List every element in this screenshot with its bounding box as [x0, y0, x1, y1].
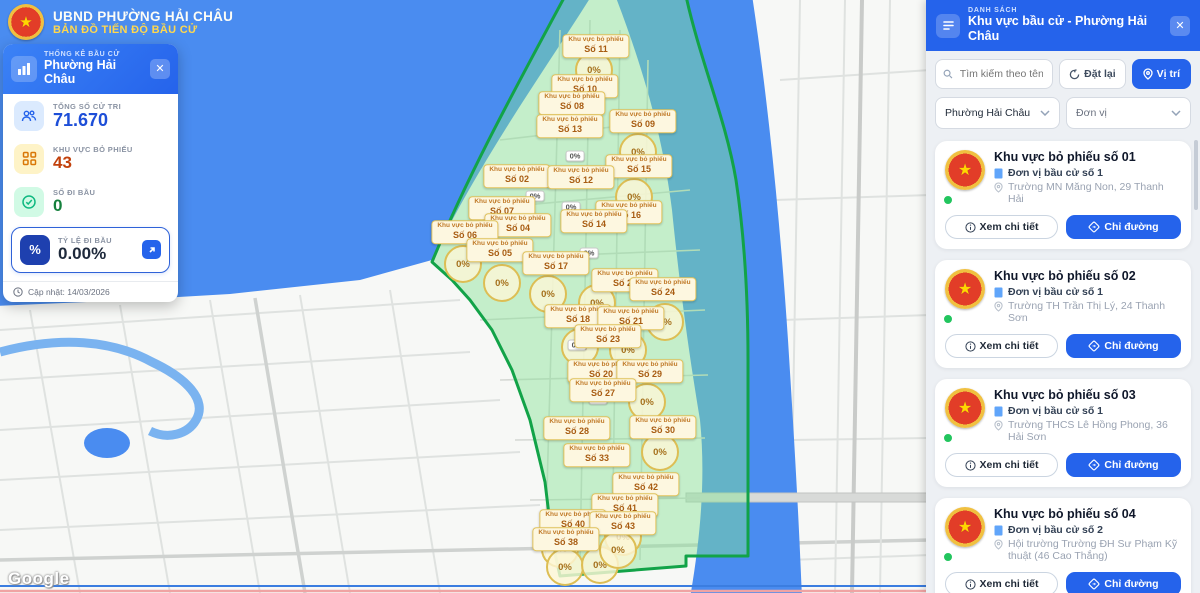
close-icon[interactable]: ✕ — [1170, 16, 1190, 36]
card-title: Khu vực bỏ phiếu số 01 — [994, 150, 1181, 164]
polling-station-list: ★Khu vực bỏ phiếu số 01Đơn vị bầu cử số … — [926, 135, 1200, 593]
polling-station-card: ★Khu vực bỏ phiếu số 02Đơn vị bầu cử số … — [935, 260, 1191, 368]
status-dot — [943, 314, 953, 324]
address-pin-icon — [994, 539, 1003, 550]
polling-area-map-marker[interactable]: Khu vực bỏ phiếuSố 28 — [543, 416, 610, 440]
app-subtitle: BẢN ĐỒ TIẾN ĐỘ BẦU CỬ — [53, 24, 233, 36]
polling-area-map-marker[interactable]: Khu vực bỏ phiếuSố 13 — [536, 114, 603, 138]
filters-area: Đặt lại Vị trí Phường Hải Châu Đơn vị — [926, 51, 1200, 135]
card-emblem: ★ — [945, 150, 985, 207]
updated-text: Cập nhật: 14/03/2026 — [28, 287, 110, 297]
marker-title: Khu vực bỏ phiếu — [603, 308, 658, 316]
card-emblem: ★ — [945, 388, 985, 445]
directions-button[interactable]: Chỉ đường — [1066, 215, 1181, 239]
marker-title: Khu vực bỏ phiếu — [622, 361, 677, 369]
chevron-down-icon — [1171, 110, 1181, 116]
polling-area-map-marker[interactable]: Khu vực bỏ phiếuSố 15 — [605, 154, 672, 178]
polling-area-map-marker[interactable]: Khu vực bỏ phiếuSố 02 — [483, 164, 550, 188]
polling-area-map-marker[interactable]: Khu vực bỏ phiếuSố 14 — [560, 209, 627, 233]
marker-title: Khu vực bỏ phiếu — [580, 326, 635, 334]
card-unit-row: Đơn vị bầu cử số 2 — [994, 524, 1181, 536]
unit-doc-icon — [994, 525, 1003, 536]
polling-station-card: ★Khu vực bỏ phiếu số 01Đơn vị bầu cử số … — [935, 141, 1191, 249]
marker-title: Khu vực bỏ phiếu — [474, 198, 529, 206]
polling-area-map-marker[interactable]: Khu vực bỏ phiếuSố 09 — [609, 109, 676, 133]
stat-value-total-voters: 71.670 — [53, 111, 121, 130]
status-dot — [943, 195, 953, 205]
card-emblem: ★ — [945, 507, 985, 564]
close-icon[interactable]: ✕ — [150, 59, 170, 79]
directions-button[interactable]: Chỉ đường — [1066, 334, 1181, 358]
address-pin-icon — [994, 420, 1003, 431]
refresh-icon — [1069, 69, 1080, 80]
polling-area-map-marker[interactable]: Khu vực bỏ phiếuSố 30 — [629, 415, 696, 439]
clock-icon — [13, 287, 23, 297]
app-header: ★ UBND PHƯỜNG HẢI CHÂU BẢN ĐỒ TIẾN ĐỘ BẦ… — [8, 4, 233, 40]
marker-number: Số 13 — [542, 124, 597, 135]
card-address-row: Hội trường Trường ĐH Sư Phạm Kỹ thuật (4… — [994, 538, 1181, 562]
percent-icon: % — [20, 235, 50, 265]
marker-number: Số 30 — [635, 425, 690, 436]
search-input[interactable] — [958, 67, 1045, 81]
marker-title: Khu vực bỏ phiếu — [544, 93, 599, 101]
view-details-button[interactable]: Xem chi tiết — [945, 453, 1058, 477]
ward-select[interactable]: Phường Hải Châu — [935, 97, 1060, 129]
google-logo: Google — [8, 569, 70, 589]
marker-title: Khu vực bỏ phiếu — [611, 156, 666, 164]
percent-circle-marker[interactable]: 0% — [599, 531, 637, 569]
marker-number: Số 42 — [618, 482, 673, 493]
info-icon — [965, 222, 976, 233]
card-address-row: Trường MN Măng Non, 29 Thanh Hải — [994, 181, 1181, 205]
marker-number: Số 28 — [549, 426, 604, 437]
card-address-row: Trường THCS Lê Hồng Phong, 36 Hải Sơn — [994, 419, 1181, 443]
marker-title: Khu vực bỏ phiếu — [528, 253, 583, 261]
directions-icon — [1088, 340, 1100, 352]
stat-value-turnout: 0.00% — [58, 245, 112, 263]
search-input-wrap — [935, 59, 1053, 89]
list-header-title: Khu vực bầu cử - Phường Hải Châu — [968, 14, 1162, 44]
marker-title: Khu vực bỏ phiếu — [595, 513, 650, 521]
marker-number: Số 23 — [580, 334, 635, 345]
bar-chart-icon — [11, 56, 37, 82]
marker-title: Khu vực bỏ phiếu — [472, 240, 527, 248]
list-panel-header: DANH SÁCH Khu vực bầu cử - Phường Hải Ch… — [926, 0, 1200, 51]
polling-area-map-marker[interactable]: Khu vực bỏ phiếuSố 12 — [547, 165, 614, 189]
marker-title: Khu vực bỏ phiếu — [618, 474, 673, 482]
marker-title: Khu vực bỏ phiếu — [635, 279, 690, 287]
polling-area-map-marker[interactable]: Khu vực bỏ phiếuSố 11 — [562, 34, 629, 58]
marker-number: Số 09 — [615, 119, 670, 130]
marker-number: Số 04 — [490, 223, 545, 234]
info-icon — [965, 579, 976, 590]
card-address-row: Trường TH Trần Thị Lý, 24 Thanh Sơn — [994, 300, 1181, 324]
external-arrow-icon[interactable] — [142, 240, 161, 259]
location-pin-icon — [1143, 68, 1153, 80]
marker-title: Khu vực bỏ phiếu — [542, 116, 597, 124]
check-circle-icon — [14, 187, 44, 217]
marker-number: Số 15 — [611, 164, 666, 175]
marker-title: Khu vực bỏ phiếu — [597, 495, 652, 503]
reset-button[interactable]: Đặt lại — [1059, 59, 1126, 89]
stats-header-label: THỐNG KÊ BẦU CỬ — [44, 51, 143, 58]
marker-number: Số 33 — [569, 453, 624, 464]
info-icon — [965, 460, 976, 471]
polling-area-map-marker[interactable]: Khu vực bỏ phiếuSố 27 — [569, 378, 636, 402]
marker-title: Khu vực bỏ phiếu — [549, 418, 604, 426]
marker-number: Số 12 — [553, 175, 608, 186]
status-dot — [943, 433, 953, 443]
marker-title: Khu vực bỏ phiếu — [538, 529, 593, 537]
marker-title: Khu vực bỏ phiếu — [553, 167, 608, 175]
marker-number: Số 24 — [635, 287, 690, 298]
stat-value-polling-areas: 43 — [53, 154, 133, 172]
directions-button[interactable]: Chỉ đường — [1066, 453, 1181, 477]
stats-panel: THỐNG KÊ BẦU CỬ Phường Hải Châu ✕ TỔNG S… — [3, 44, 178, 302]
app-title: UBND PHƯỜNG HẢI CHÂU — [53, 9, 233, 24]
polling-area-map-marker[interactable]: Khu vực bỏ phiếuSố 43 — [589, 511, 656, 535]
chevron-down-icon — [1040, 110, 1050, 116]
marker-number: Số 38 — [538, 537, 593, 548]
card-title: Khu vực bỏ phiếu số 04 — [994, 507, 1181, 521]
info-icon — [965, 341, 976, 352]
percent-circle-marker[interactable]: 0% — [546, 548, 584, 586]
marker-number: Số 08 — [544, 101, 599, 112]
marker-number: Số 17 — [528, 261, 583, 272]
marker-title: Khu vực bỏ phiếu — [566, 211, 621, 219]
scrollbar[interactable] — [1194, 140, 1198, 210]
marker-number: Số 27 — [575, 388, 630, 399]
marker-title: Khu vực bỏ phiếu — [615, 111, 670, 119]
percent-circle-marker[interactable]: 0% — [483, 264, 521, 302]
list-menu-icon[interactable] — [936, 14, 960, 38]
grid-icon — [14, 144, 44, 174]
card-title: Khu vực bỏ phiếu số 03 — [994, 388, 1181, 402]
polling-area-map-marker[interactable]: Khu vực bỏ phiếuSố 24 — [629, 277, 696, 301]
view-details-button[interactable]: Xem chi tiết — [945, 572, 1058, 593]
polling-area-map-marker[interactable]: Khu vực bỏ phiếuSố 17 — [522, 251, 589, 275]
unit-select[interactable]: Đơn vị — [1066, 97, 1191, 129]
marker-title: Khu vực bỏ phiếu — [557, 76, 612, 84]
search-icon — [943, 68, 953, 80]
address-pin-icon — [994, 182, 1003, 193]
card-emblem: ★ — [945, 269, 985, 326]
view-details-button[interactable]: Xem chi tiết — [945, 334, 1058, 358]
card-unit-row: Đơn vị bầu cử số 1 — [994, 167, 1181, 179]
card-title: Khu vực bỏ phiếu số 02 — [994, 269, 1181, 283]
stats-updated: Cập nhật: 14/03/2026 — [3, 281, 178, 302]
polling-area-map-marker[interactable]: Khu vực bỏ phiếuSố 38 — [532, 527, 599, 551]
pond — [84, 428, 130, 458]
directions-icon — [1088, 459, 1100, 471]
marker-title: Khu vực bỏ phiếu — [489, 166, 544, 174]
marker-title: Khu vực bỏ phiếu — [490, 215, 545, 223]
directions-icon — [1088, 578, 1100, 590]
marker-number: Số 14 — [566, 219, 621, 230]
marker-title: Khu vực bỏ phiếu — [635, 417, 690, 425]
stat-polling-areas: KHU VỰC BỎ PHIẾU 43 — [3, 137, 178, 180]
stats-panel-header: THỐNG KÊ BẦU CỬ Phường Hải Châu ✕ — [3, 44, 178, 94]
marker-title: Khu vực bỏ phiếu — [575, 380, 630, 388]
card-unit-row: Đơn vị bầu cử số 1 — [994, 405, 1181, 417]
marker-number: Số 05 — [472, 248, 527, 259]
voters-people-icon — [14, 101, 44, 131]
stat-value-voted: 0 — [53, 197, 95, 215]
polling-area-map-marker[interactable]: Khu vực bỏ phiếuSố 08 — [538, 91, 605, 115]
marker-number: Số 11 — [568, 44, 623, 55]
percent-mini-label: 0% — [566, 151, 585, 162]
polling-station-card: ★Khu vực bỏ phiếu số 04Đơn vị bầu cử số … — [935, 498, 1191, 593]
unit-doc-icon — [994, 287, 1003, 298]
directions-button[interactable]: Chỉ đường — [1066, 572, 1181, 593]
polling-station-card: ★Khu vực bỏ phiếu số 03Đơn vị bầu cử số … — [935, 379, 1191, 487]
polling-area-map-marker[interactable]: Khu vực bỏ phiếuSố 23 — [574, 324, 641, 348]
unit-doc-icon — [994, 168, 1003, 179]
list-header-label: DANH SÁCH — [968, 7, 1162, 14]
turnout-rate-box: % TỶ LỆ ĐI BẦU 0.00% — [11, 227, 170, 273]
stat-total-voters: TỔNG SỐ CỬ TRI 71.670 — [3, 94, 178, 137]
card-unit-row: Đơn vị bầu cử số 1 — [994, 286, 1181, 298]
stat-voted: SỐ ĐI BẦU 0 — [3, 180, 178, 223]
directions-icon — [1088, 221, 1100, 233]
list-panel: DANH SÁCH Khu vực bầu cử - Phường Hải Ch… — [926, 0, 1200, 593]
national-emblem-logo: ★ — [8, 4, 44, 40]
marker-number: Số 43 — [595, 521, 650, 532]
marker-number: Số 02 — [489, 174, 544, 185]
location-button[interactable]: Vị trí — [1132, 59, 1191, 89]
marker-title: Khu vực bỏ phiếu — [568, 36, 623, 44]
view-details-button[interactable]: Xem chi tiết — [945, 215, 1058, 239]
stats-header-title: Phường Hải Châu — [44, 58, 143, 87]
status-dot — [943, 552, 953, 562]
unit-doc-icon — [994, 406, 1003, 417]
address-pin-icon — [994, 301, 1003, 312]
marker-title: Khu vực bỏ phiếu — [437, 222, 492, 230]
marker-title: Khu vực bỏ phiếu — [569, 445, 624, 453]
polling-area-map-marker[interactable]: Khu vực bỏ phiếuSố 33 — [563, 443, 630, 467]
